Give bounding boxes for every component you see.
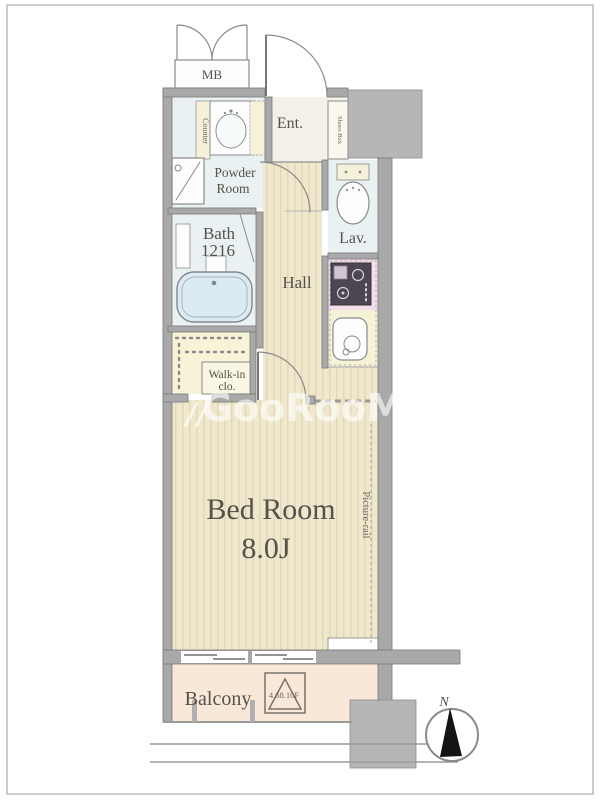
wall-lav-kitchen: [328, 253, 378, 259]
kitchen-sink: [333, 318, 367, 360]
floor-plan-svg: N MB Ent. Powder Room Bath 1216 Lav. Hal…: [0, 0, 600, 800]
label-shoes-box: Shoes Box: [336, 116, 343, 145]
label-lavatory: Lav.: [339, 230, 367, 247]
wall-closet-east: [250, 332, 256, 394]
bedroom-corner-notch: [328, 638, 378, 650]
watermark: // GooRooM: [183, 386, 404, 432]
compass-north-label: N: [438, 695, 449, 710]
wall-entrance-powder: [265, 97, 272, 162]
wall-block-top-right: [348, 90, 422, 158]
washbasin-sink: [216, 114, 246, 148]
label-balcony: Balcony: [185, 688, 252, 710]
bathtub: [177, 272, 252, 322]
wall-left: [163, 88, 172, 722]
wall-top-left: [163, 88, 265, 97]
wall-top-right: [327, 88, 348, 97]
watermark-text: GooRooM: [202, 386, 405, 430]
bath-counter: [176, 224, 190, 268]
label-powder-1: Powder: [214, 165, 256, 180]
label-bedroom-name: Bed Room: [206, 493, 335, 526]
label-bedroom-size: 8.0J: [241, 532, 291, 565]
label-counter: Counter: [201, 118, 210, 144]
toilet-tank: [337, 164, 369, 180]
wall-closet-bottom-a: [163, 394, 188, 402]
wall-kitchen-west: [322, 256, 328, 368]
label-hall: Hall: [282, 273, 312, 292]
label-walkin-1: Walk-in: [209, 369, 246, 381]
wall-hall-west: [256, 212, 263, 348]
label-picture-rail: Picture-rail: [360, 491, 371, 538]
wall-bath-closet: [168, 326, 256, 332]
label-powder-2: Room: [216, 181, 250, 196]
label-bath-2: 1216: [201, 241, 235, 260]
label-mb: MB: [202, 67, 223, 82]
wall-lav-west-top: [322, 160, 328, 210]
label-entrance: Ent.: [277, 115, 303, 132]
wall-powder-bath: [168, 208, 256, 214]
overhead-cabinet: [250, 101, 265, 155]
window-right: [252, 651, 316, 663]
floor-plan-page: N MB Ent. Powder Room Bath 1216 Lav. Hal…: [0, 0, 600, 800]
label-balcony-note: 4.68.10F: [269, 690, 300, 700]
window-left: [181, 651, 248, 663]
wall-block-bottom-right: [350, 700, 416, 768]
